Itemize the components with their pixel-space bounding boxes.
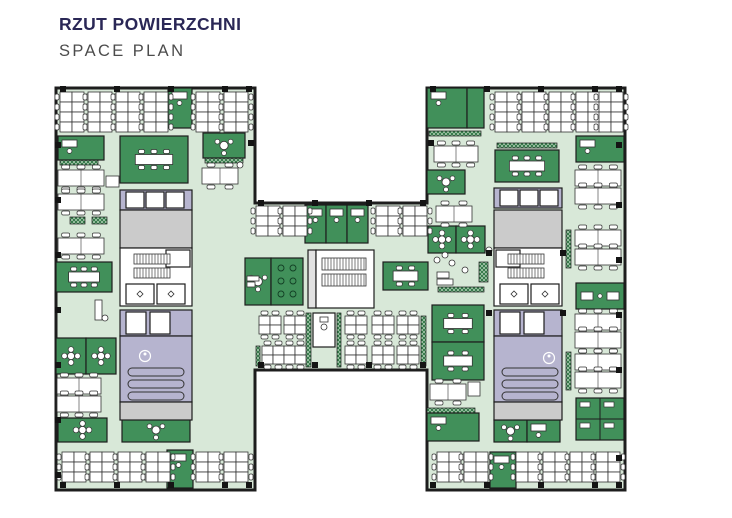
room-lg	[308, 250, 316, 308]
room-g-clover	[456, 226, 485, 253]
room-w-wc	[313, 313, 335, 347]
room-w	[150, 312, 170, 334]
bench-table	[57, 391, 101, 417]
room-w	[520, 190, 538, 206]
desk-cluster	[219, 452, 253, 482]
room-w-dr	[531, 284, 559, 304]
desk-cluster	[278, 206, 312, 236]
room-w	[126, 192, 144, 208]
room-g-desk	[427, 413, 479, 441]
room-gy	[494, 402, 562, 420]
desk-cluster	[398, 206, 432, 236]
room-g-desk	[326, 205, 347, 243]
room-w-dr	[126, 284, 154, 304]
desk-cluster	[141, 452, 175, 482]
room-gy	[120, 402, 192, 420]
bench-table	[434, 141, 478, 167]
room-w	[524, 312, 544, 334]
desk-cluster	[139, 92, 173, 132]
bench-table	[58, 189, 104, 215]
room-g-clover	[58, 418, 107, 442]
room-w-dr	[157, 284, 185, 304]
bench-table	[58, 165, 104, 191]
room-gy	[494, 210, 562, 248]
room-g-round	[122, 418, 190, 442]
bench-table	[575, 183, 621, 209]
room-g-round	[245, 258, 271, 305]
room-g-desk	[576, 136, 624, 162]
room-w	[146, 192, 164, 208]
room-g-conf	[383, 262, 428, 290]
floor-plan	[0, 0, 732, 518]
room-w-dr	[500, 284, 528, 304]
room-g-conf	[56, 262, 112, 292]
room-g-round	[203, 133, 245, 158]
room-g-conf	[495, 150, 559, 182]
room-g-desk2	[576, 283, 624, 309]
room-gy	[120, 210, 192, 248]
room-g-conf	[432, 342, 484, 380]
room-g-conf	[120, 136, 188, 183]
desk-cluster	[594, 92, 628, 132]
room-g-plants	[271, 258, 303, 305]
room-g-desk	[58, 136, 104, 160]
bench-table	[575, 244, 621, 270]
page-title: RZUT POWIERZCHNI	[59, 14, 241, 35]
desk-cluster	[219, 92, 253, 132]
room-w	[500, 190, 518, 206]
bench-table	[58, 233, 104, 259]
room-w	[540, 190, 558, 206]
space-plan-page: RZUT POWIERZCHNI SPACE PLAN	[0, 0, 732, 518]
room-g-round	[494, 420, 527, 442]
page-subtitle: SPACE PLAN	[59, 42, 241, 61]
room-g-desk	[347, 205, 368, 243]
room-g-clover	[86, 338, 116, 374]
room-w	[166, 192, 184, 208]
room-g-desk	[527, 420, 560, 442]
room-g	[467, 88, 484, 128]
room-w	[126, 312, 146, 334]
room-g-round	[427, 170, 465, 194]
room-g-clover	[56, 338, 86, 374]
room-g-x4	[576, 398, 624, 440]
room-g-desk	[427, 88, 467, 128]
plan-header: RZUT POWIERZCHNI SPACE PLAN	[59, 14, 241, 61]
room-g-conf	[432, 305, 484, 342]
bench-table	[575, 367, 621, 393]
room-w	[500, 312, 520, 334]
desk-cluster	[459, 452, 493, 482]
